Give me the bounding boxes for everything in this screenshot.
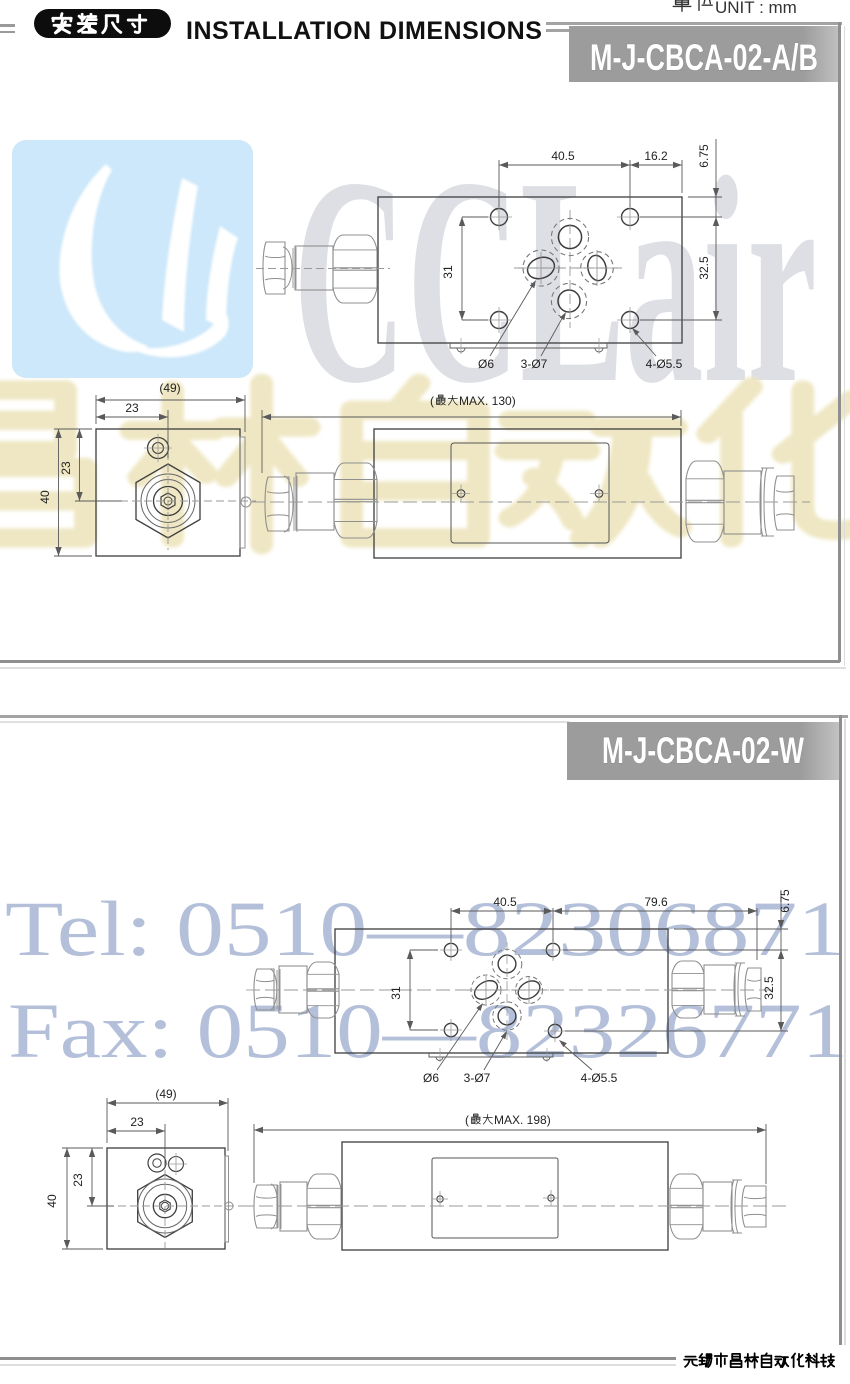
svg-text:3-Ø7: 3-Ø7 — [521, 357, 548, 371]
svg-text:6.75: 6.75 — [697, 144, 711, 168]
svg-text:MAX. 198): MAX. 198) — [494, 1113, 551, 1127]
svg-text:6.75: 6.75 — [778, 889, 792, 913]
svg-text:23: 23 — [125, 401, 139, 415]
svg-text:4-Ø5.5: 4-Ø5.5 — [581, 1071, 618, 1085]
svg-text:16.2: 16.2 — [644, 149, 668, 163]
svg-text:31: 31 — [389, 986, 403, 1000]
svg-text:(: ( — [430, 394, 434, 408]
svg-text:(49): (49) — [159, 381, 180, 395]
svg-text:23: 23 — [59, 461, 73, 475]
svg-text:(49): (49) — [155, 1087, 176, 1101]
svg-text:79.6: 79.6 — [644, 895, 668, 909]
svg-text:M-J-CBCA-02-A/B: M-J-CBCA-02-A/B — [590, 37, 818, 78]
svg-text:(: ( — [465, 1113, 469, 1127]
svg-text:40: 40 — [45, 1194, 59, 1208]
svg-text:3-Ø7: 3-Ø7 — [464, 1071, 491, 1085]
svg-text:31: 31 — [441, 265, 455, 279]
svg-text:40: 40 — [38, 490, 52, 504]
svg-text:Ø6: Ø6 — [423, 1071, 439, 1085]
svg-text:4-Ø5.5: 4-Ø5.5 — [646, 357, 683, 371]
svg-text:UNIT : mm: UNIT : mm — [715, 0, 797, 17]
svg-text:32.5: 32.5 — [762, 976, 776, 1000]
svg-text:23: 23 — [71, 1173, 85, 1187]
svg-text:M-J-CBCA-02-W: M-J-CBCA-02-W — [602, 730, 804, 771]
svg-text:Ø6: Ø6 — [478, 357, 494, 371]
svg-text:32.5: 32.5 — [697, 256, 711, 280]
svg-text:40.5: 40.5 — [551, 149, 575, 163]
svg-text:40.5: 40.5 — [493, 895, 517, 909]
svg-text:23: 23 — [130, 1115, 144, 1129]
svg-text:MAX. 130): MAX. 130) — [459, 394, 516, 408]
